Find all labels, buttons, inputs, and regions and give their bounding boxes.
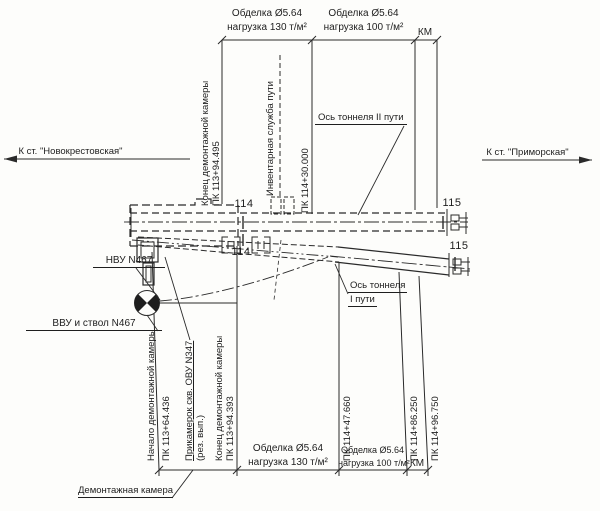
station-bottom-end-chamber: Конец демонтажной камеры ПК 113+94.393 (214, 336, 236, 461)
station-bottom-pk-47-value: ПК 114+47.660 (342, 396, 353, 461)
station-bottom-pk-47: ПК 114+47.660 (342, 396, 353, 461)
axis-tunnel-2-label: Ось тоннеля II пути (315, 112, 407, 125)
plan-drawing-canvas (0, 0, 600, 511)
annotation-demolition-chamber: Демонтажная камера (78, 485, 173, 498)
station-top-pk-114-30: ПК 114+30.000 (300, 148, 311, 213)
direction-right-label: К ст. "Приморская" (475, 147, 580, 159)
direction-left-label: К ст. "Новокрестовская" (8, 146, 133, 158)
station-bottom-pk-96-value: ПК 114+96.750 (430, 396, 441, 461)
shaft-symbol-icon (135, 291, 238, 316)
end-detail-track-1 (449, 253, 470, 277)
axis-tunnel-1-label-line2: I пути (348, 294, 377, 307)
inventory-equipment (271, 197, 294, 214)
track-curve-centerline (160, 257, 328, 301)
dim-bottom-seg1-title: Обделка Ø5.64 (237, 443, 339, 455)
picket-114-lower: 114 (228, 246, 254, 258)
station-bottom-end-chamber-name: Конец демонтажной камеры (214, 336, 225, 461)
station-bottom-pk-96: ПК 114+96.750 (430, 396, 441, 461)
station-top-end-chamber: Конец демонтажной камеры ПК 113+94.495 (200, 81, 222, 206)
dimension-top (218, 36, 441, 300)
station-bottom-prikamerok: Прикамерок скв. ОВУ N347 (рез. вып.) (184, 341, 206, 461)
station-bottom-prikamerok-name: Прикамерок скв. ОВУ N347 (184, 341, 195, 461)
station-top-end-chamber-name: Конец демонтажной камеры (200, 81, 211, 206)
dim-top-seg2-title: Обделка Ø5.64 (312, 8, 415, 20)
station-bottom-pk-86: ПК 114+86.250 (409, 396, 420, 461)
dim-top-km-label: КМ (413, 27, 437, 39)
station-bottom-start-chamber-pk: ПК 113+64.436 (161, 396, 172, 461)
station-top-inventory-name: Инвентарная служба пути (265, 81, 276, 196)
picket-115-lower: 115 (446, 240, 472, 252)
picket-114-upper: 114 (231, 198, 257, 210)
annotation-nvu: НВУ N467 (93, 255, 165, 268)
station-bottom-prikamerok-note: (рез. вып.) (195, 341, 206, 461)
station-bottom-start-chamber-name: Начало демонтажной камеры (146, 329, 157, 461)
station-bottom-start-chamber-pk-col: ПК 113+64.436 (161, 396, 172, 461)
station-top-pk-114-30-value: ПК 114+30.000 (300, 148, 311, 213)
tunnel-track-2 (124, 208, 468, 237)
dim-top-seg2-load: нагрузка 100 т/м² (312, 22, 415, 34)
plan-drawing-sheet: К ст. "Новокрестовская" К ст. "Приморска… (0, 0, 600, 511)
picket-115-upper: 115 (439, 197, 465, 209)
station-bottom-end-chamber-pk: ПК 113+94.393 (225, 336, 236, 461)
annotation-vvu-shaft: ВВУ и ствол N467 (26, 318, 162, 331)
dim-top-seg1-title: Обделка Ø5.64 (222, 8, 312, 20)
station-bottom-pk-86-value: ПК 114+86.250 (409, 396, 420, 461)
station-bottom-start-chamber-name-col: Начало демонтажной камеры (146, 329, 157, 461)
end-detail-track-2 (447, 209, 468, 236)
dim-bottom-seg1-load: нагрузка 130 т/м² (237, 457, 339, 469)
axis-tunnel-1-label-line1: Ось тоннеля (348, 280, 407, 293)
station-top-inventory: Инвентарная служба пути (265, 81, 276, 196)
station-top-end-chamber-pk: ПК 113+94.495 (211, 81, 222, 206)
dim-top-seg1-load: нагрузка 130 т/м² (222, 22, 312, 34)
